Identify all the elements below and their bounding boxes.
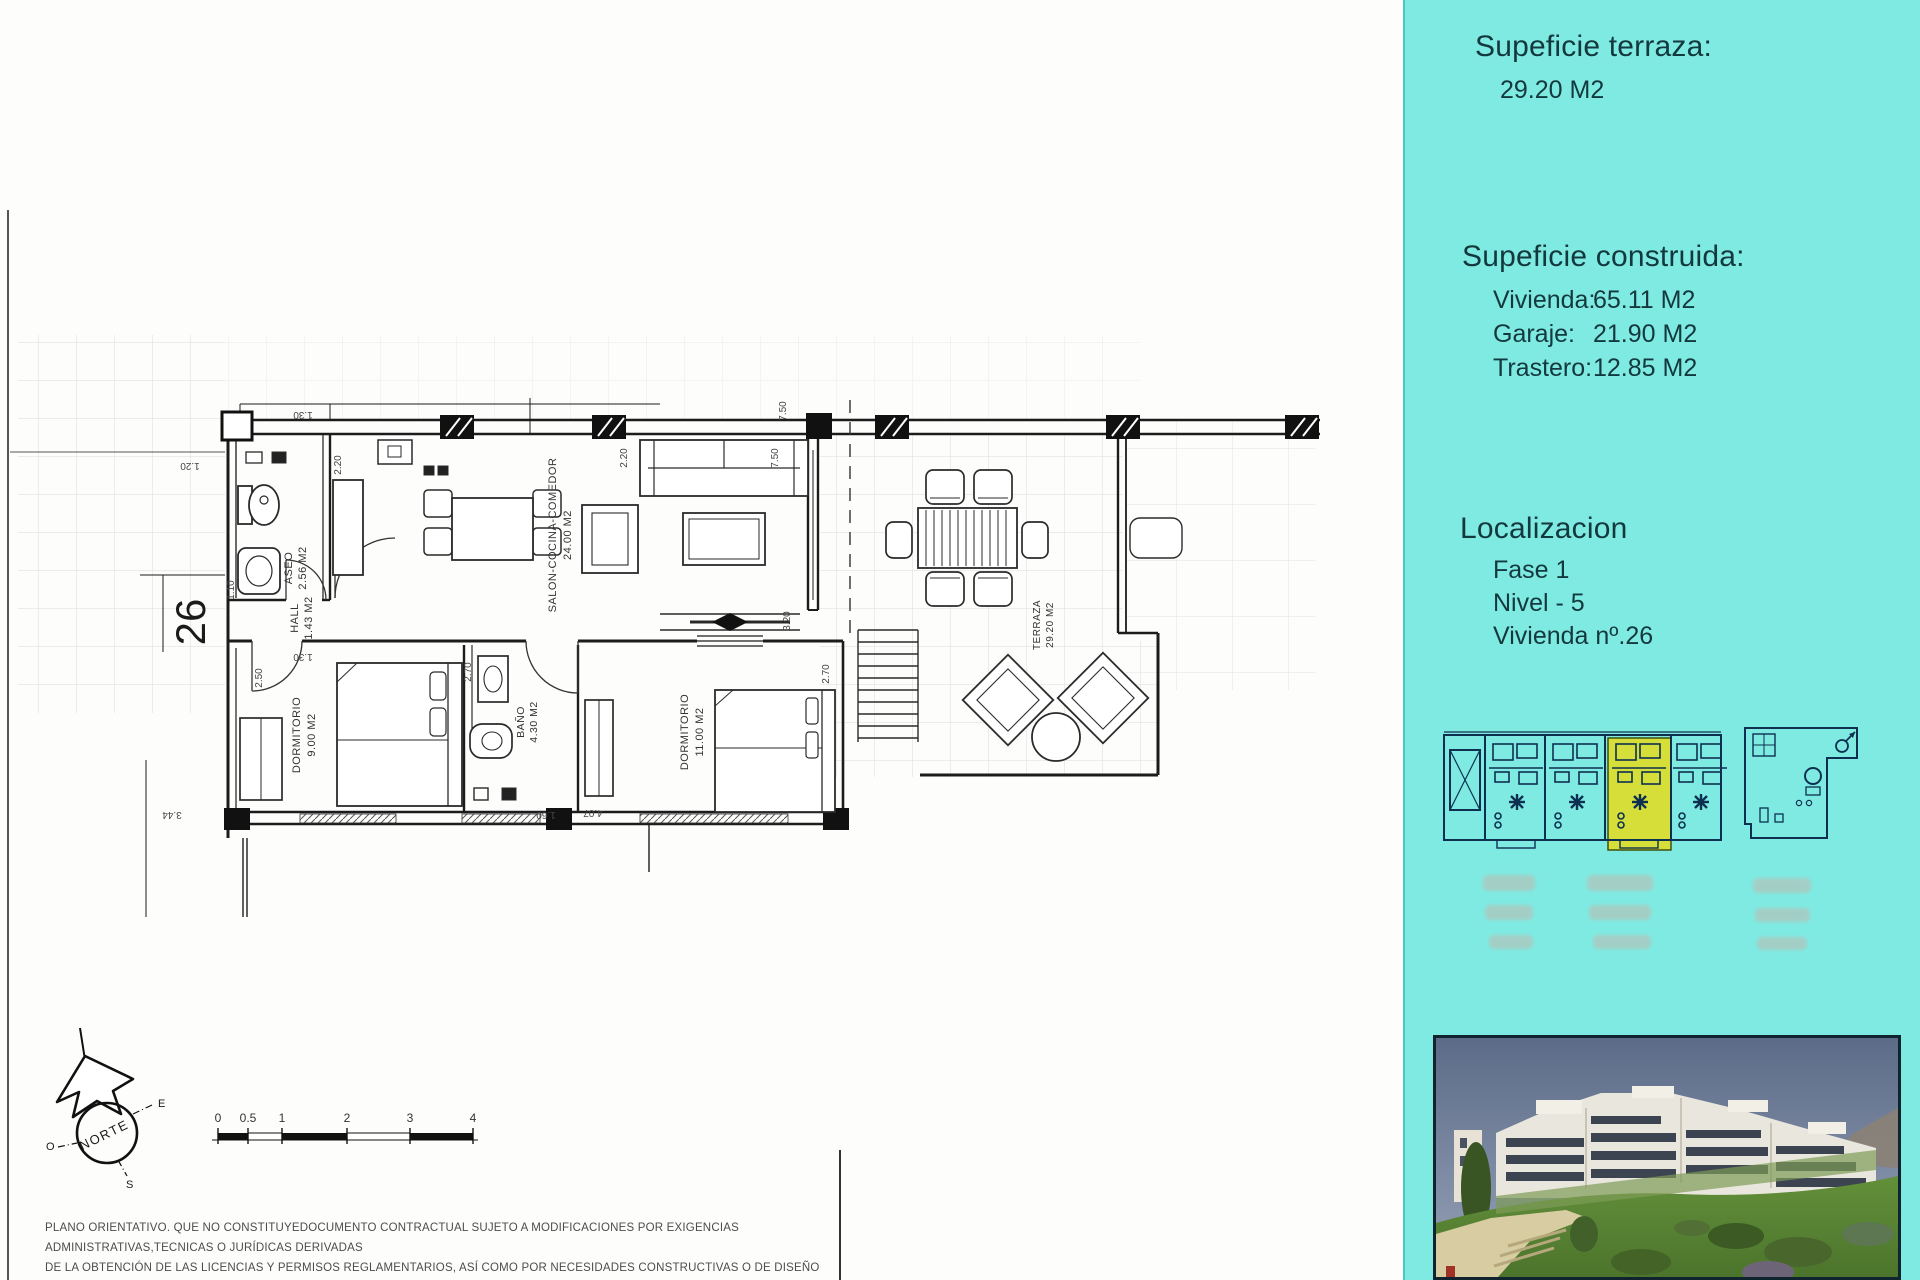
terrace-title: Supeficie terraza: <box>1475 30 1712 64</box>
room-area-salon: 24.00 M2 <box>562 510 574 560</box>
location-fase: Fase 1 <box>1493 556 1569 585</box>
scale-bar: 0 0.5 1 2 3 4 <box>212 1111 478 1144</box>
svg-text:NORTE: NORTE <box>77 1117 131 1154</box>
room-area-dorm2: 11.00 M2 <box>694 707 706 756</box>
svg-text:4.07: 4.07 <box>583 807 603 818</box>
svg-text:2.20: 2.20 <box>333 455 344 475</box>
room-area-hall: 1.43 M2 <box>303 596 315 639</box>
minimap-ghost-marks <box>1483 875 1811 950</box>
room-label-salon: SALON-COCINA-COMEDOR <box>547 458 559 613</box>
svg-text:2.70: 2.70 <box>463 662 474 682</box>
location-nivel: Nivel - 5 <box>1493 589 1585 618</box>
room-label-terraza: TERRAZA <box>1032 600 1043 650</box>
svg-text:7.50: 7.50 <box>778 401 789 421</box>
svg-text:E: E <box>158 1098 165 1110</box>
svg-text:7.50: 7.50 <box>770 448 781 468</box>
room-label-dorm1: DORMITORIO <box>291 697 303 773</box>
info-sidebar: Supeficie terraza: 29.20 M2 Supeficie co… <box>1403 0 1920 1280</box>
terrace-value: 29.20 M2 <box>1500 76 1604 105</box>
location-minimap <box>1405 690 1920 990</box>
svg-text:2.20: 2.20 <box>619 448 630 468</box>
room-area-terraza: 29.20 M2 <box>1045 602 1056 648</box>
svg-text:4: 4 <box>470 1111 477 1125</box>
svg-text:1.10: 1.10 <box>226 580 237 600</box>
building-rendering-photo <box>1433 1035 1901 1280</box>
room-label-hall: HALL <box>289 603 301 633</box>
unit-number: 26 <box>167 599 214 646</box>
disclaimer-text: PLANO ORIENTATIVO. QUE NO CONSTITUYEDOCU… <box>45 1218 845 1280</box>
room-area-bano: 4.30 M2 <box>528 701 540 742</box>
svg-text:3.20: 3.20 <box>782 611 793 631</box>
built-item-vivienda: Vivienda: 65.11 M2 <box>1493 286 1695 315</box>
svg-text:S: S <box>126 1179 133 1191</box>
built-title: Supeficie construida: <box>1462 240 1745 274</box>
floorplan-sheet: SALON-COCINA-COMEDOR 24.00 M2 ASEO 2.56 … <box>0 0 1920 1280</box>
built-item-garaje: Garaje: 21.90 M2 <box>1493 320 1697 349</box>
north-compass-icon <box>57 1028 152 1176</box>
svg-text:1.30: 1.30 <box>293 651 313 662</box>
room-label-bano: BAÑO <box>514 706 527 738</box>
svg-text:O: O <box>46 1141 55 1153</box>
svg-text:0.5: 0.5 <box>240 1111 257 1125</box>
svg-text:2.50: 2.50 <box>254 668 265 688</box>
rendering-scene <box>1436 1038 1898 1277</box>
disclaimer-line-1: PLANO ORIENTATIVO. QUE NO CONSTITUYEDOCU… <box>45 1218 845 1258</box>
room-label-aseo: ASEO <box>283 552 295 585</box>
room-area-aseo: 2.56 M2 <box>297 546 309 589</box>
built-item-trastero: Trastero: 12.85 M2 <box>1493 354 1697 383</box>
svg-text:0: 0 <box>215 1111 222 1125</box>
svg-text:3: 3 <box>407 1111 414 1125</box>
room-area-dorm1: 9.00 M2 <box>306 713 318 756</box>
svg-text:1.20: 1.20 <box>180 460 200 471</box>
svg-text:2.70: 2.70 <box>821 664 832 684</box>
location-vivienda: Vivienda nº.26 <box>1493 622 1653 651</box>
disclaimer-line-2: DE LA OBTENCIÓN DE LAS LICENCIAS Y PERMI… <box>45 1258 845 1280</box>
minimap-building-right <box>1745 728 1857 838</box>
room-label-dorm2: DORMITORIO <box>679 694 691 770</box>
location-title: Localizacion <box>1460 512 1628 546</box>
svg-text:1.60: 1.60 <box>536 809 556 820</box>
svg-text:1: 1 <box>279 1111 286 1125</box>
svg-text:2: 2 <box>344 1111 351 1125</box>
svg-text:1.30: 1.30 <box>293 409 313 420</box>
floorplan-drawing: SALON-COCINA-COMEDOR 24.00 M2 ASEO 2.56 … <box>0 0 1403 1280</box>
compass-labels: NORTE E O S <box>46 1098 165 1191</box>
svg-text:3.44: 3.44 <box>162 809 182 820</box>
minimap-building-left <box>1444 732 1721 848</box>
minimap-north-icon <box>1836 732 1855 752</box>
